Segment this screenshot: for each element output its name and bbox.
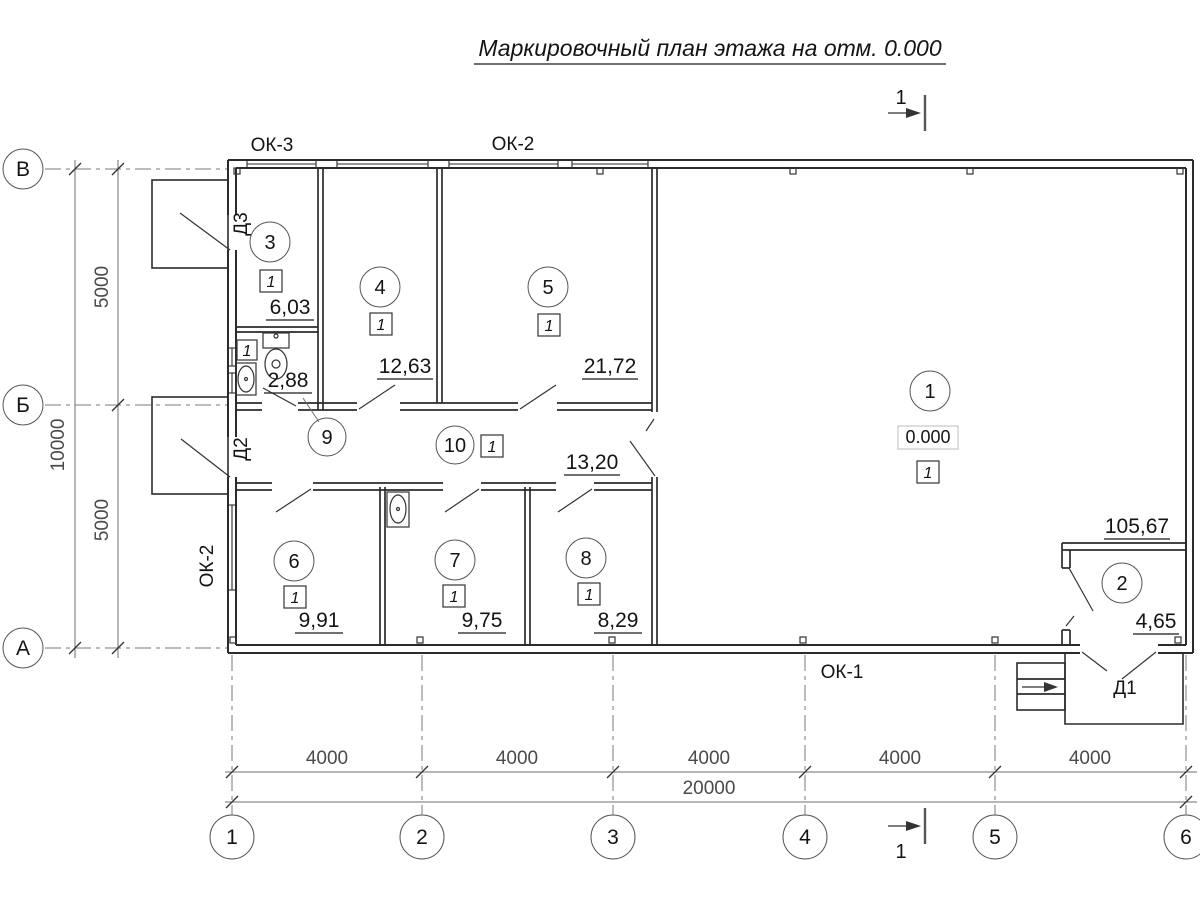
window-label-ok3: ОК-3 [251, 135, 294, 156]
porches [152, 180, 1183, 724]
room-area: 6,03 [270, 296, 311, 319]
room-area: 105,67 [1105, 515, 1169, 538]
floor-plan-drawing: Маркировочный план этажа на отм. 0.000 1… [0, 0, 1200, 900]
room-3-annotation: 3 1 6,03 [250, 222, 314, 320]
finish-marker-value: 1 [924, 465, 933, 482]
room-area: 9,91 [299, 609, 340, 632]
dim-left-5000-bottom: 5000 [92, 499, 113, 541]
door-leaf-corridor [630, 441, 655, 476]
dim-bottom-4000: 4000 [688, 748, 730, 769]
finish-marker-value: 1 [243, 343, 252, 360]
room-area: 9,75 [462, 609, 503, 632]
room-area: 2,88 [268, 369, 309, 392]
section-number: 1 [895, 841, 906, 863]
room-number: 5 [542, 277, 553, 299]
section-mark-top: 1 [888, 87, 925, 131]
dim-bottom-4000: 4000 [1069, 748, 1111, 769]
door-label-d3: Д3 [231, 212, 252, 235]
room-number: 4 [374, 277, 385, 299]
grid-col-label: 6 [1180, 826, 1192, 849]
room-number: 3 [264, 232, 275, 254]
finish-marker-value: 1 [377, 317, 386, 334]
section-mark-bottom: 1 [888, 808, 925, 863]
grid-col-label: 4 [799, 826, 811, 849]
grid-axes [45, 169, 1186, 815]
finish-marker-value: 1 [545, 318, 554, 335]
door-label-d1: Д1 [1113, 678, 1136, 699]
grid-col-label: 1 [226, 826, 238, 849]
grid-row-bubbles: В Б А [3, 149, 43, 668]
door-leaf-d1-left [1082, 652, 1107, 671]
window-label-ok1: ОК-1 [821, 662, 864, 683]
room-area: 12,63 [379, 355, 432, 378]
dim-bottom-4000: 4000 [496, 748, 538, 769]
room-1-annotation: 1 0.000 1 105,67 [898, 371, 1170, 539]
grid-col-label: 3 [607, 826, 619, 849]
room-7-annotation: 7 1 9,75 [435, 540, 506, 633]
section-arrow-icon [906, 108, 921, 118]
finish-marker-value: 1 [291, 590, 300, 607]
room-number: 7 [449, 550, 460, 572]
door-leaf-d2 [181, 439, 230, 477]
dim-left-5000-top: 5000 [92, 266, 113, 308]
grid-col-label: 2 [416, 826, 428, 849]
door-leaf-room4 [359, 385, 395, 409]
section-number: 1 [895, 87, 906, 109]
room-2-annotation: 2 4,65 [1102, 563, 1179, 634]
grid-row-label: Б [16, 394, 30, 417]
door-leaf-room2 [1069, 568, 1093, 611]
room-area: 4,65 [1136, 610, 1177, 633]
dim-left-10000: 10000 [48, 419, 69, 472]
door-leaf-room6 [276, 489, 311, 512]
entrance-arrow-icon [1044, 682, 1058, 692]
room-number: 8 [580, 548, 591, 570]
room-4-annotation: 4 1 12,63 [360, 267, 433, 379]
plan-svg: Маркировочный план этажа на отм. 0.000 1… [0, 0, 1200, 900]
room-number: 9 [321, 427, 332, 449]
finish-marker-value: 1 [450, 589, 459, 606]
room-number: 6 [288, 551, 299, 573]
window-label-ok2-top: ОК-2 [492, 134, 535, 155]
room-area: 13,20 [566, 451, 619, 474]
dim-bottom-4000: 4000 [879, 748, 921, 769]
door-stop-room2 [1066, 616, 1074, 626]
grid-row-label: А [16, 637, 30, 660]
door-label-d2: Д2 [231, 437, 252, 460]
page-title: Маркировочный план этажа на отм. 0.000 [478, 35, 941, 61]
section-arrow-icon [906, 821, 921, 831]
exterior-walls [228, 160, 1193, 653]
door-stop-corridor [646, 419, 654, 431]
room-5-annotation: 5 1 21,72 [528, 267, 638, 379]
door-leaf-room5 [520, 385, 556, 409]
door-leaf-room7 [445, 489, 479, 512]
elevation-value: 0.000 [905, 427, 950, 447]
room-area: 21,72 [584, 355, 637, 378]
finish-marker-value: 1 [488, 439, 497, 456]
door-leaf-d1-right [1122, 652, 1156, 679]
grid-row-label: В [16, 158, 30, 181]
window-label-ok2-left: ОК-2 [197, 545, 218, 588]
door-leaf-d3 [180, 213, 230, 250]
left-dimensions: 5000 10000 5000 [48, 160, 124, 658]
room-8-annotation: 8 1 8,29 [566, 538, 642, 633]
room-number: 1 [924, 381, 935, 403]
door-leaf-room8 [558, 489, 592, 512]
room-9-annotation: 1 2,88 9 [237, 340, 346, 456]
room-number: 10 [444, 435, 466, 457]
room-6-annotation: 6 1 9,91 [274, 541, 343, 633]
washbasin-icon [236, 363, 256, 395]
room-area: 8,29 [598, 609, 639, 632]
bottom-dimensions: 4000 4000 4000 4000 4000 20000 [225, 748, 1197, 808]
finish-marker-value: 1 [267, 274, 276, 291]
drawing-title: Маркировочный план этажа на отм. 0.000 [474, 35, 946, 64]
room-10-annotation: 10 1 13,20 [436, 426, 620, 475]
room-number: 2 [1116, 573, 1127, 595]
interior-walls [236, 168, 1186, 645]
dim-bottom-total: 20000 [683, 778, 736, 799]
finish-marker-value: 1 [585, 587, 594, 604]
grid-col-bubbles: 1 2 3 4 5 6 [210, 815, 1200, 859]
porch-d3 [152, 180, 228, 268]
washbasin-icon [387, 492, 409, 527]
grid-col-label: 5 [989, 826, 1001, 849]
dim-bottom-4000: 4000 [306, 748, 348, 769]
